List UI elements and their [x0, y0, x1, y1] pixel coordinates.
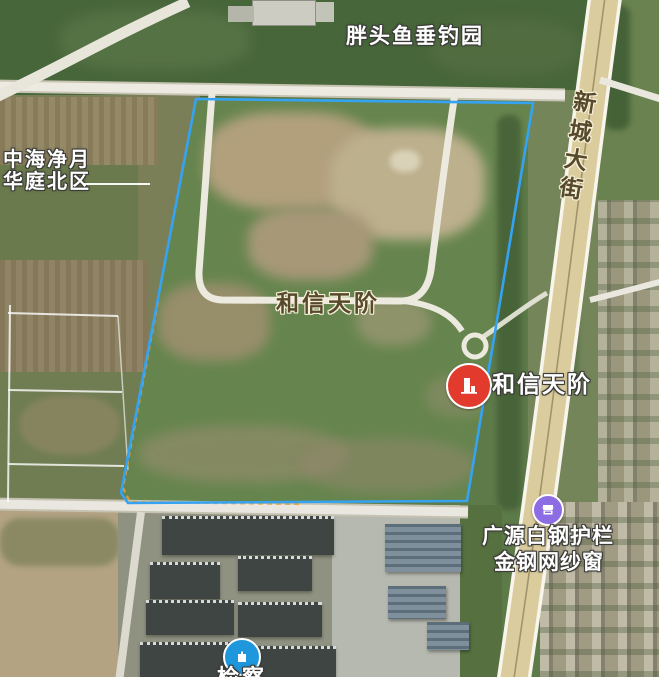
label-site-area: 和信天阶 — [276, 291, 380, 316]
parcel-boundary-orange-dash — [123, 302, 300, 504]
field-line — [8, 464, 124, 466]
label-bottom-poi-partial[interactable]: 检察 — [217, 666, 267, 677]
field-line — [8, 313, 118, 316]
label-leader-line — [84, 183, 150, 185]
field-line — [8, 305, 10, 502]
site-path-loop-circle — [464, 335, 486, 357]
road-branch-right — [590, 281, 659, 300]
site-path-branch — [404, 301, 462, 331]
site-inner-loop — [199, 93, 455, 301]
label-residential-line1: 中海净月 — [3, 150, 91, 172]
field-line — [8, 390, 122, 392]
road-bottom-vertical — [119, 512, 141, 677]
label-site-marker[interactable]: 和信天阶 — [492, 372, 592, 397]
storefront-icon — [540, 502, 556, 518]
label-fishing-garden[interactable]: 胖头鱼垂钓园 — [346, 26, 484, 49]
shop-poi-pin[interactable] — [532, 494, 564, 526]
building-icon — [457, 374, 481, 398]
field-line — [118, 316, 128, 470]
roads-and-boundary-overlay — [0, 0, 659, 677]
label-residential-line2: 华庭北区 — [3, 172, 91, 194]
label-shop-line1[interactable]: 广源白钢护栏 — [482, 526, 614, 549]
building-icon — [233, 648, 251, 666]
satellite-map-canvas[interactable]: 胖头鱼垂钓园 中海净月 华庭北区 和信天阶 新城大街 和信天阶 广源白钢护栏 金… — [0, 0, 659, 677]
site-path-connector — [483, 293, 547, 337]
site-marker-pin[interactable] — [446, 363, 492, 409]
label-shop-line2[interactable]: 金钢网纱窗 — [494, 552, 604, 575]
